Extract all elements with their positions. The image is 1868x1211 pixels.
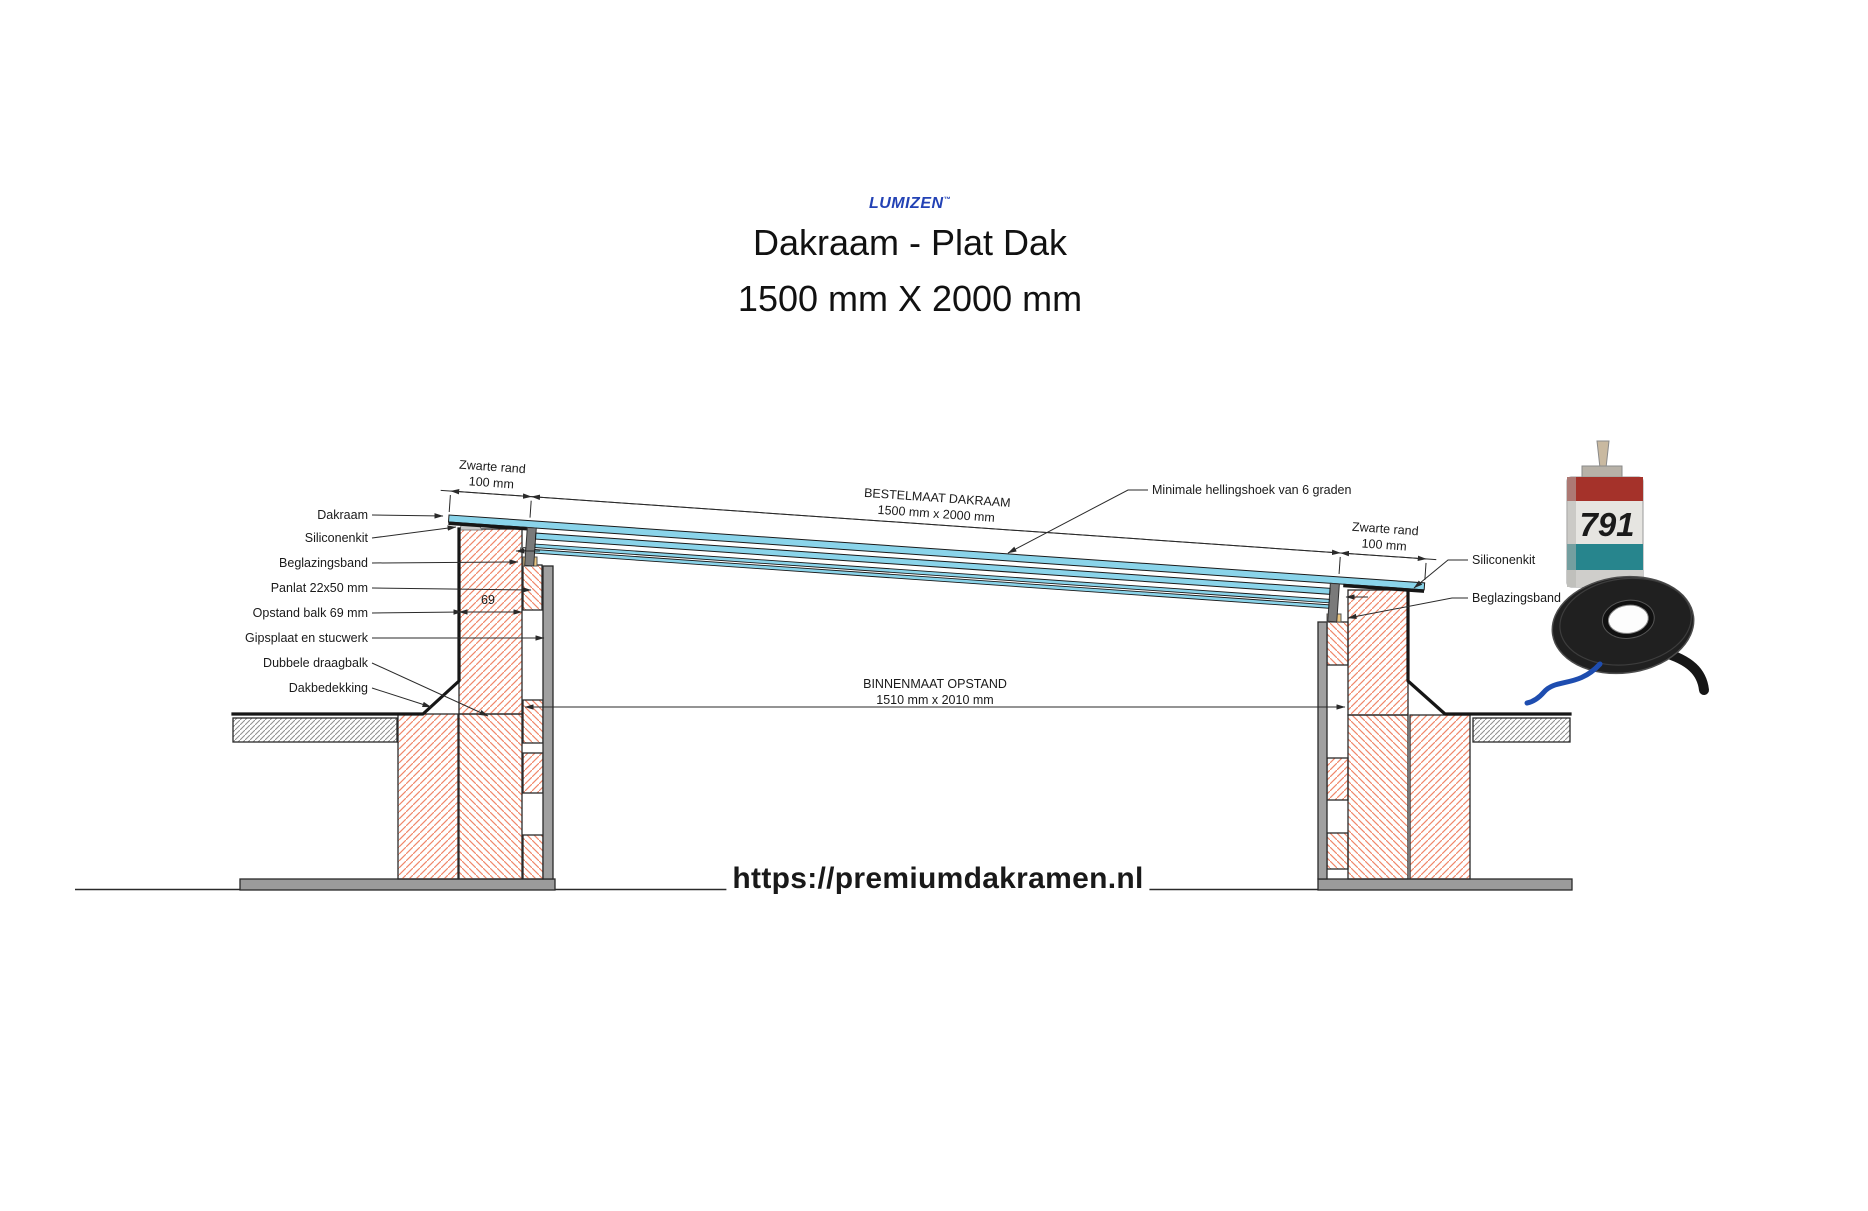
footer-url: https://premiumdakramen.nl — [726, 862, 1149, 896]
sealant-cartridge-label: 791 — [1579, 506, 1634, 543]
left-roof-deck — [233, 718, 397, 742]
label-dakraam: Dakraam — [317, 508, 368, 522]
binnenmaat-value: 1510 mm x 2010 mm — [876, 693, 993, 707]
label-dubbele-draagbalk: Dubbele draagbalk — [263, 656, 369, 670]
right-wall — [1318, 581, 1570, 879]
foam-tape-roll-image — [1527, 569, 1704, 703]
right-stud-3 — [1327, 833, 1348, 869]
label-opstand-balk: Opstand balk 69 mm — [253, 606, 368, 620]
left-panlat — [523, 565, 542, 610]
label-beglazingsband-right: Beglazingsband — [1472, 591, 1561, 605]
zwarte-rand-right-value: 100 mm — [1361, 536, 1407, 553]
label-siliconenkit-left: Siliconenkit — [305, 531, 369, 545]
right-beam-outer — [1410, 715, 1470, 879]
left-foundation — [240, 879, 555, 890]
left-beam-outer — [398, 714, 458, 879]
opstand-width-value: 69 — [481, 593, 495, 607]
page: LUMIZEN™ Dakraam - Plat Dak 1500 mm X 20… — [0, 0, 1868, 1211]
left-stud-3 — [523, 835, 543, 879]
right-dakbedekking-line — [1408, 590, 1570, 714]
right-stud-1 — [1327, 622, 1348, 665]
sealant-cartridge-image: 791 — [1567, 441, 1643, 587]
left-gipsplaat — [543, 566, 553, 879]
left-stud-1 — [523, 700, 543, 743]
right-beam-inner — [1348, 715, 1408, 879]
left-beam-inner — [459, 714, 522, 879]
label-panlat: Panlat 22x50 mm — [271, 581, 368, 595]
right-upstand — [1348, 590, 1408, 715]
right-foundation — [1318, 879, 1572, 890]
hellingshoek-label: Minimale hellingshoek van 6 graden — [1152, 483, 1351, 497]
glass-pane-middle — [536, 533, 1330, 594]
label-siliconenkit-right: Siliconenkit — [1472, 553, 1536, 567]
glass-pane-bottom-b — [535, 550, 1329, 609]
right-roof-deck — [1473, 718, 1570, 742]
binnenmaat-dimension: BINNENMAAT OPSTAND 1510 mm x 2010 mm — [525, 677, 1345, 707]
label-beglazingsband-left: Beglazingsband — [279, 556, 368, 570]
technical-drawing: Zwarte rand 100 mm BESTELMAAT DAKRAAM 15… — [0, 0, 1868, 1211]
left-upstand — [459, 529, 522, 714]
label-dakbedekking: Dakbedekking — [289, 681, 368, 695]
label-gipsplaat: Gipsplaat en stucwerk — [245, 631, 369, 645]
right-stud-2 — [1327, 758, 1348, 800]
right-gipsplaat — [1318, 622, 1327, 879]
left-wall — [233, 521, 553, 879]
hellingshoek-annotation: Minimale hellingshoek van 6 graden — [1008, 483, 1351, 553]
binnenmaat-label: BINNENMAAT OPSTAND — [863, 677, 1007, 691]
left-stud-2 — [523, 753, 543, 793]
zwarte-rand-left-value: 100 mm — [468, 474, 514, 491]
